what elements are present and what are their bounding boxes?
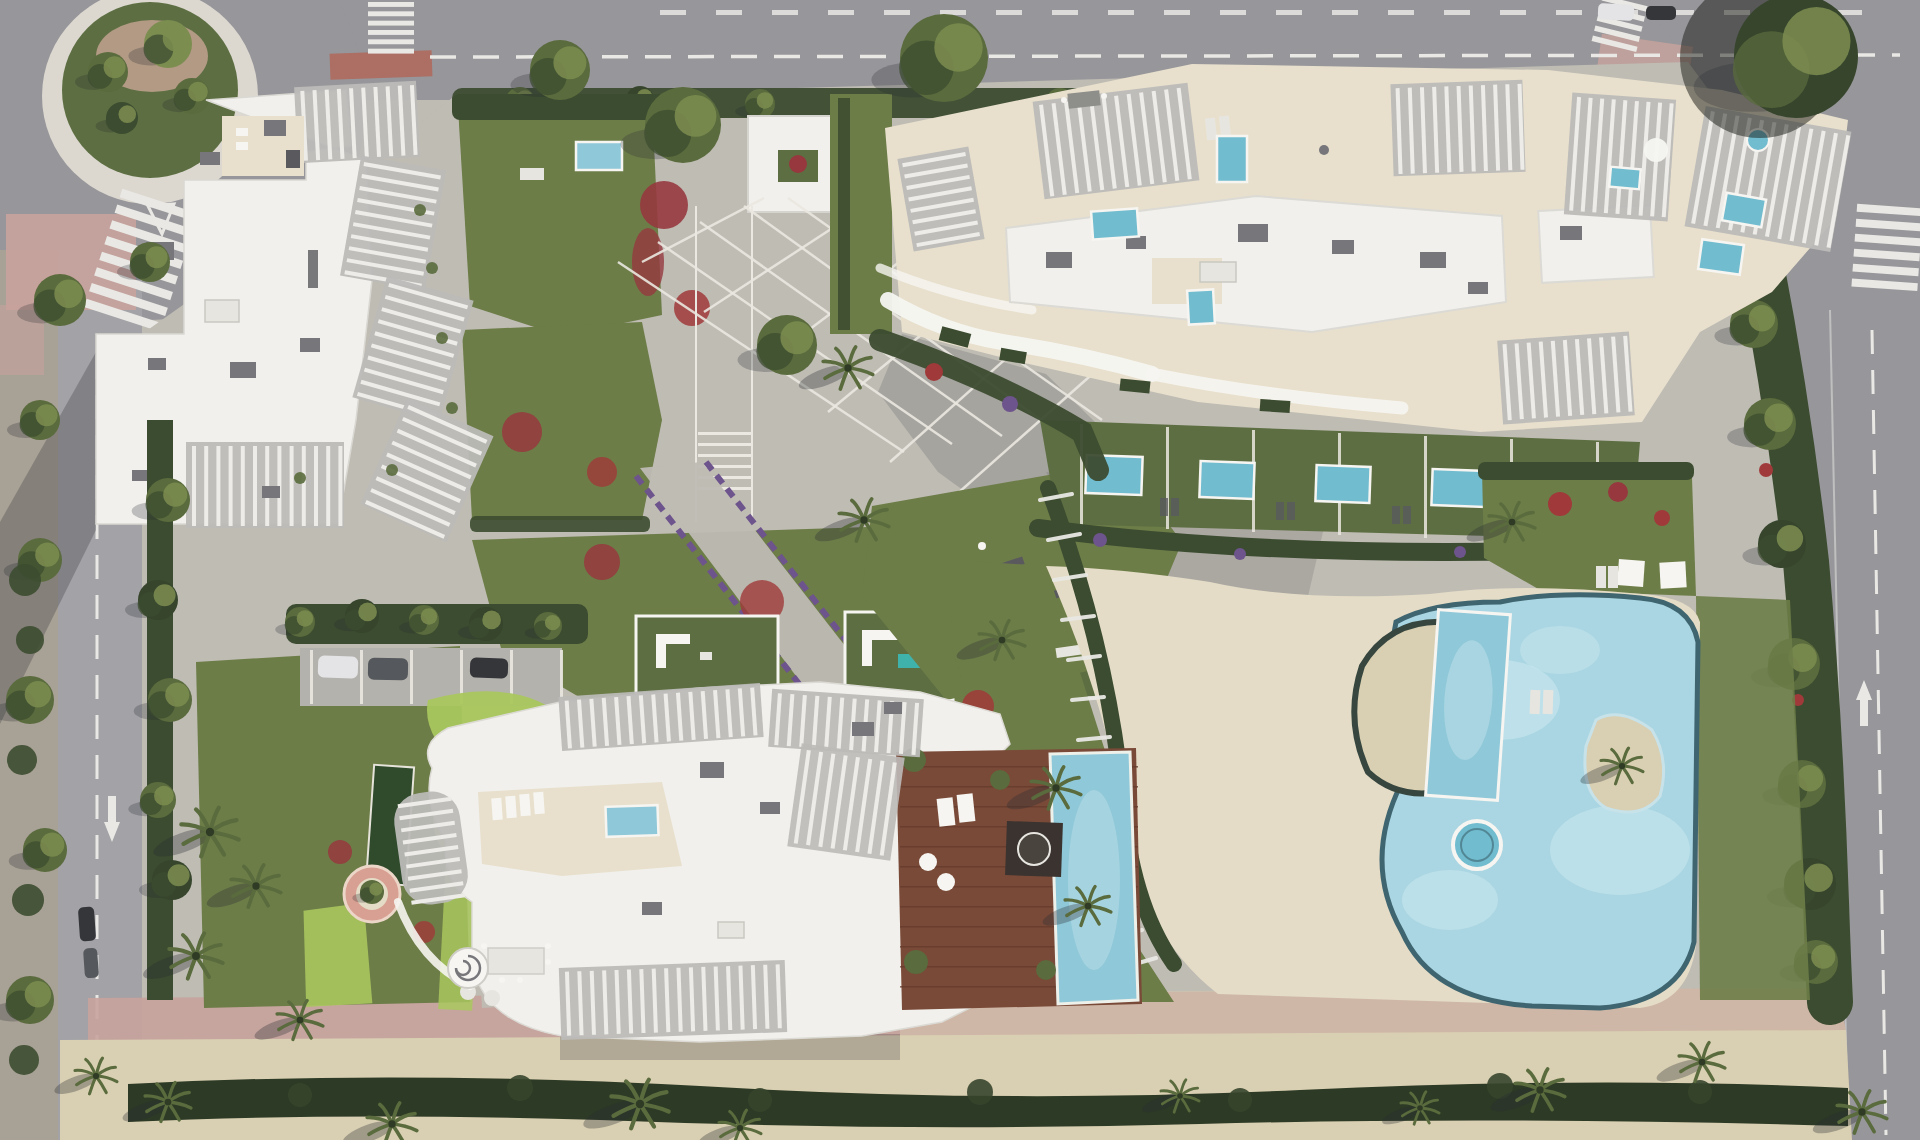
sidewalk-bush [16,626,44,654]
c-dining-chair [517,977,523,983]
c-round-table [484,990,500,1006]
sidewalk-bush [9,564,41,596]
hedge-b-south-flowers [1002,396,1018,412]
b-lounge [1284,134,1300,150]
deck-pouf [919,853,937,871]
c-roofbox [700,762,724,778]
a-terrace-plant [294,472,306,484]
c-roofbox-white [718,922,744,938]
car-topright-2 [1646,6,1676,20]
c-terrace-pool [605,805,658,837]
b-gardens-purple [1234,548,1246,560]
a-roofbox [132,470,148,481]
plot1-sofa [656,644,666,668]
flowers-ne [1548,492,1572,516]
parked-car [368,658,408,681]
arrow-left-stem [108,796,116,822]
c-lounger [505,796,517,819]
c-dining-chair [545,943,551,949]
b-daybed [1671,163,1689,181]
flowers-center [584,544,620,580]
b-chair [1061,97,1067,103]
b-roofbox [1468,282,1488,294]
b-roofbox [1238,224,1268,242]
b-garden-lounger [1160,498,1168,516]
a-terrace-box [286,150,300,168]
plot1-sofa [656,634,690,644]
b-lounge-table [1319,145,1329,155]
a-skylight [308,250,318,288]
gym-dot [978,542,986,550]
b-garden-lounger [1403,506,1411,524]
c-dining-chair [481,943,487,949]
deck-lounger [957,793,976,823]
a-terrace-plant [446,402,458,414]
flowers-north [640,181,688,229]
b-garden-pool [1315,465,1370,503]
c-dining-table [488,948,544,974]
flowers-ne [1654,510,1670,526]
sidewalk-bush [9,1045,39,1075]
b-garden-lounger [1392,506,1400,524]
sidewalk-bush [7,745,37,775]
b-roofbox-white [1200,262,1236,282]
b-parasol [1644,138,1668,162]
pool-north-lawn [576,142,622,170]
a-roofbox [148,358,166,370]
flowers-west [502,412,542,452]
deck-plant [1036,960,1056,980]
plot1-table [700,652,712,660]
c-lounger [519,794,531,817]
c-lounger [491,798,503,821]
median-bush [507,1075,533,1101]
c-spiral-pavilion [448,948,488,988]
median-bush [748,1088,772,1112]
b-lounge [1302,128,1318,144]
border-flowers [1759,463,1773,477]
flowers-ne [1608,482,1628,502]
a-roofbox [200,152,220,165]
b-chair [1101,93,1107,99]
flowers-west [587,457,617,487]
a-terrace-plant [436,332,448,344]
flowers-sw [328,840,352,864]
a-louver-bottom-bg [186,442,344,528]
pool-lounger [1608,566,1618,588]
deck-pool-blotch [1068,790,1120,970]
a-terrace-plant [426,262,438,274]
b-garden-pool [1199,461,1254,499]
c-roofbox [760,802,780,814]
b-terrace-pool [1609,167,1641,190]
deck-plant [904,950,928,974]
parasol [1659,561,1686,588]
hedge-west-lawn [470,516,650,532]
flowers-north [632,228,664,296]
scene-canvas [0,0,1920,1140]
parked-car [470,657,509,678]
median-bush [967,1079,993,1105]
a-terrace-plant [386,464,398,476]
a-terrace-chair [236,128,248,136]
median-bush [1688,1080,1712,1104]
a-roofbox [230,362,256,378]
b-garden-lounger [1171,498,1179,516]
b-gardens-purple [1454,546,1466,558]
b-roofbox [1332,240,1354,254]
b-terrace-pool [1091,208,1139,239]
parked-car [318,655,359,678]
deck-plant [990,770,1010,790]
lawn-west [462,322,662,520]
a-roofbox [262,486,280,498]
median-bush [1228,1088,1252,1112]
b-terrace-pool [1722,193,1766,228]
b-garden-lounger [1276,502,1284,520]
median-bush [288,1083,312,1107]
lagoon-blotch [1550,805,1690,895]
a-roofbox-white [205,300,239,322]
c-roofbox [884,702,902,714]
plot2-sofa [862,640,872,666]
bus-shelter-roof [330,50,433,80]
parasol [1617,559,1645,587]
b-terrace-pool [1698,239,1744,275]
b-garden-lounger [1287,502,1295,520]
b-roofbox [1046,252,1072,268]
car-left-1 [78,906,96,941]
a-terrace-plant [414,204,426,216]
hedge-b-west [838,98,850,330]
b-roofbox [1420,252,1446,268]
a-roofbox [300,338,320,352]
c-dining-chair [499,977,505,983]
pool-lounger [1530,690,1541,714]
hedge-pool-ne [1478,462,1694,480]
arrow-right-stem [1860,700,1868,726]
b-terrace-pool [1187,289,1215,324]
aerial-site-render [0,0,1920,1140]
lagoon-blotch [1520,626,1600,674]
a-terrace-box [264,120,286,136]
b-terrace-pool [1217,136,1247,182]
sidewalk-bush [12,884,44,916]
pool-lounger [1596,566,1606,588]
lagoon-blotch [1402,870,1498,930]
b-roofbox [1560,226,1582,240]
bench-north-lawn [520,168,544,180]
deck-lounger [937,797,956,827]
c-dining-chair [545,959,551,965]
hedge-b-south-flowers [925,363,943,381]
c-lounger [533,792,545,815]
a-terrace-chair [236,142,248,150]
pavilion-courtyard-flowers [789,155,807,173]
b-gardens-purple [1093,533,1107,547]
car-left-2 [83,948,99,979]
pool-lounger [1543,690,1554,714]
car-topright-1 [1598,3,1635,21]
c-roofbox [642,902,662,915]
c-roofbox [852,722,874,736]
deck-pouf [937,873,955,891]
deck-parasol [1018,833,1050,865]
b-planter [1260,399,1291,413]
lane-dash-top [430,55,1900,57]
